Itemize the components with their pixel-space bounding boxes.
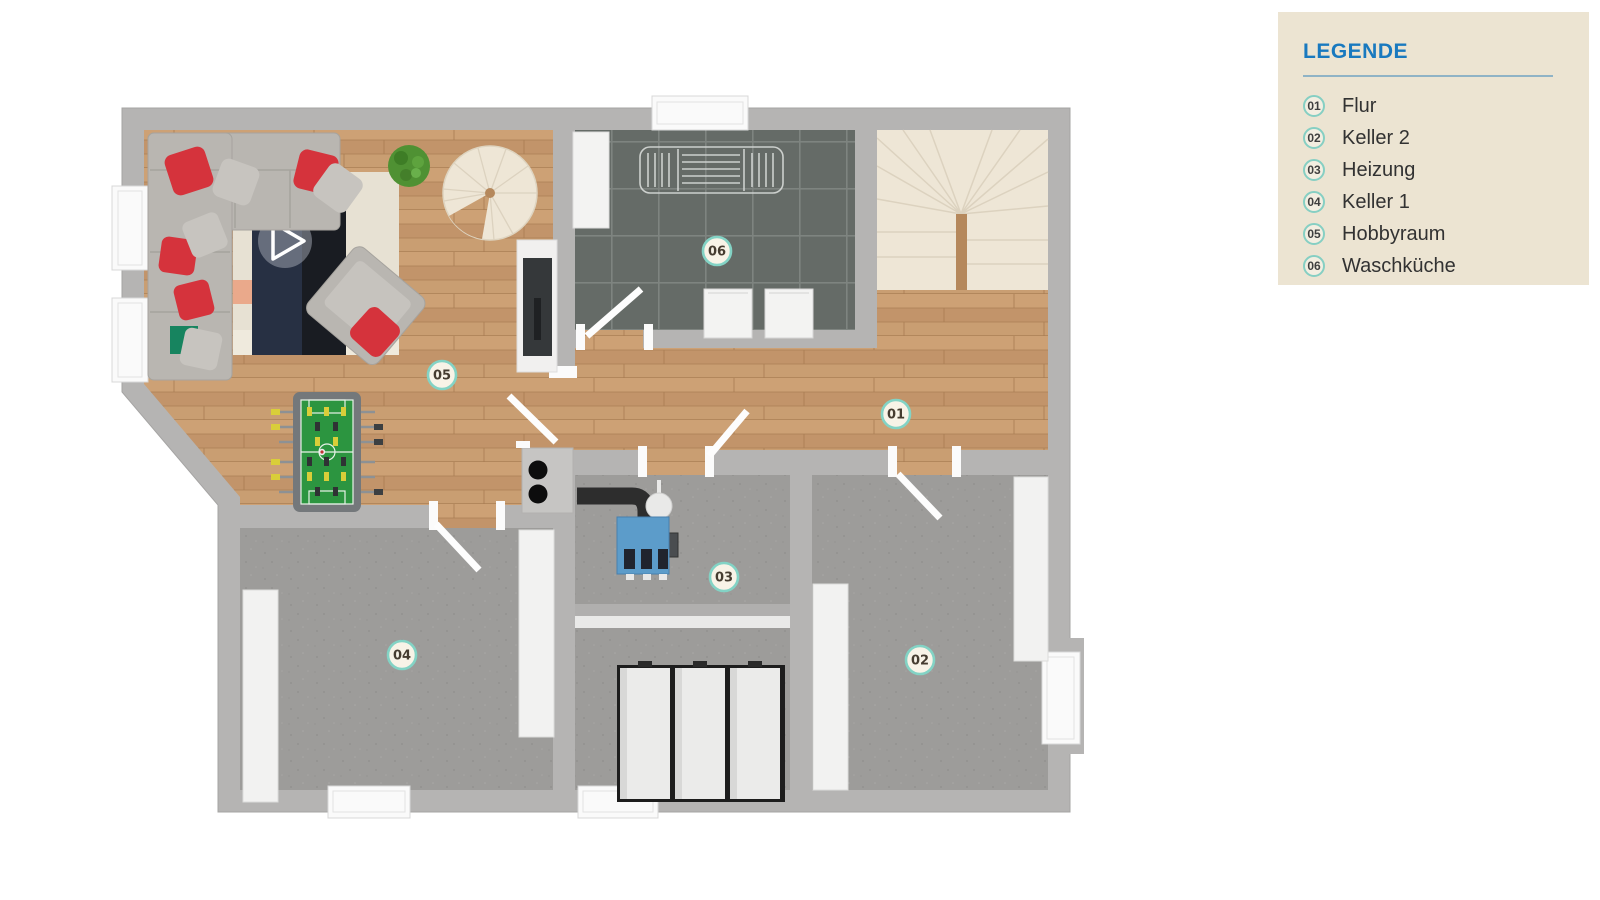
cabinet: [573, 132, 609, 228]
legend-num-badge: 04: [1303, 191, 1325, 213]
legend-num-badge: 03: [1303, 159, 1325, 181]
oil-tanks: [617, 661, 785, 802]
dryer: [765, 289, 813, 338]
legend-num-badge: 05: [1303, 223, 1325, 245]
legend-divider: [1303, 75, 1553, 77]
room-marker-03: 03: [710, 563, 738, 591]
window-left-1: [112, 186, 148, 270]
legend-title: LEGENDE: [1303, 40, 1564, 64]
legend-item-label: Heizung: [1342, 159, 1415, 182]
plant: [388, 145, 430, 187]
tv-sideboard: [517, 240, 557, 372]
chimney: [522, 448, 573, 513]
legend-item-label: Flur: [1342, 95, 1376, 118]
legend-item-label: Waschküche: [1342, 255, 1456, 278]
legend-num-badge: 02: [1303, 127, 1325, 149]
legend-item-heizung: 03 Heizung: [1303, 154, 1589, 186]
legend-item-label: Hobbyraum: [1342, 223, 1445, 246]
main-staircase: [877, 130, 1048, 290]
legend-num-badge: 01: [1303, 95, 1325, 117]
room-marker-06: 06: [703, 237, 731, 265]
svg-text:05: 05: [433, 369, 451, 384]
legend-num-badge: 06: [1303, 255, 1325, 277]
room-marker-04: 04: [388, 641, 416, 669]
window-right: [1042, 652, 1080, 744]
legend-panel: LEGENDE 01 Flur 02 Keller 2 03 Heizung 0…: [1278, 12, 1589, 285]
room-marker-02: 02: [906, 646, 934, 674]
tank-room-divider: [575, 604, 790, 628]
legend-item-label: Keller 2: [1342, 127, 1410, 150]
legend-item-keller2: 02 Keller 2: [1303, 122, 1589, 154]
legend-item-waschkueche: 06 Waschküche: [1303, 250, 1589, 282]
room-marker-05: 05: [428, 361, 456, 389]
svg-text:06: 06: [708, 245, 726, 260]
window-bottom-1: [328, 786, 410, 818]
svg-text:03: 03: [715, 571, 733, 586]
legend-item-hobbyraum: 05 Hobbyraum: [1303, 218, 1589, 250]
legend-item-label: Keller 1: [1342, 191, 1410, 214]
legend-item-keller1: 04 Keller 1: [1303, 186, 1589, 218]
svg-text:02: 02: [911, 654, 929, 669]
window-top: [652, 96, 748, 130]
svg-text:04: 04: [393, 649, 411, 664]
spiral-staircase: [443, 146, 537, 240]
room-marker-01: 01: [882, 400, 910, 428]
washing-machine: [704, 289, 752, 338]
window-left-2: [112, 298, 148, 382]
svg-text:01: 01: [887, 408, 905, 423]
legend-item-flur: 01 Flur: [1303, 90, 1589, 122]
